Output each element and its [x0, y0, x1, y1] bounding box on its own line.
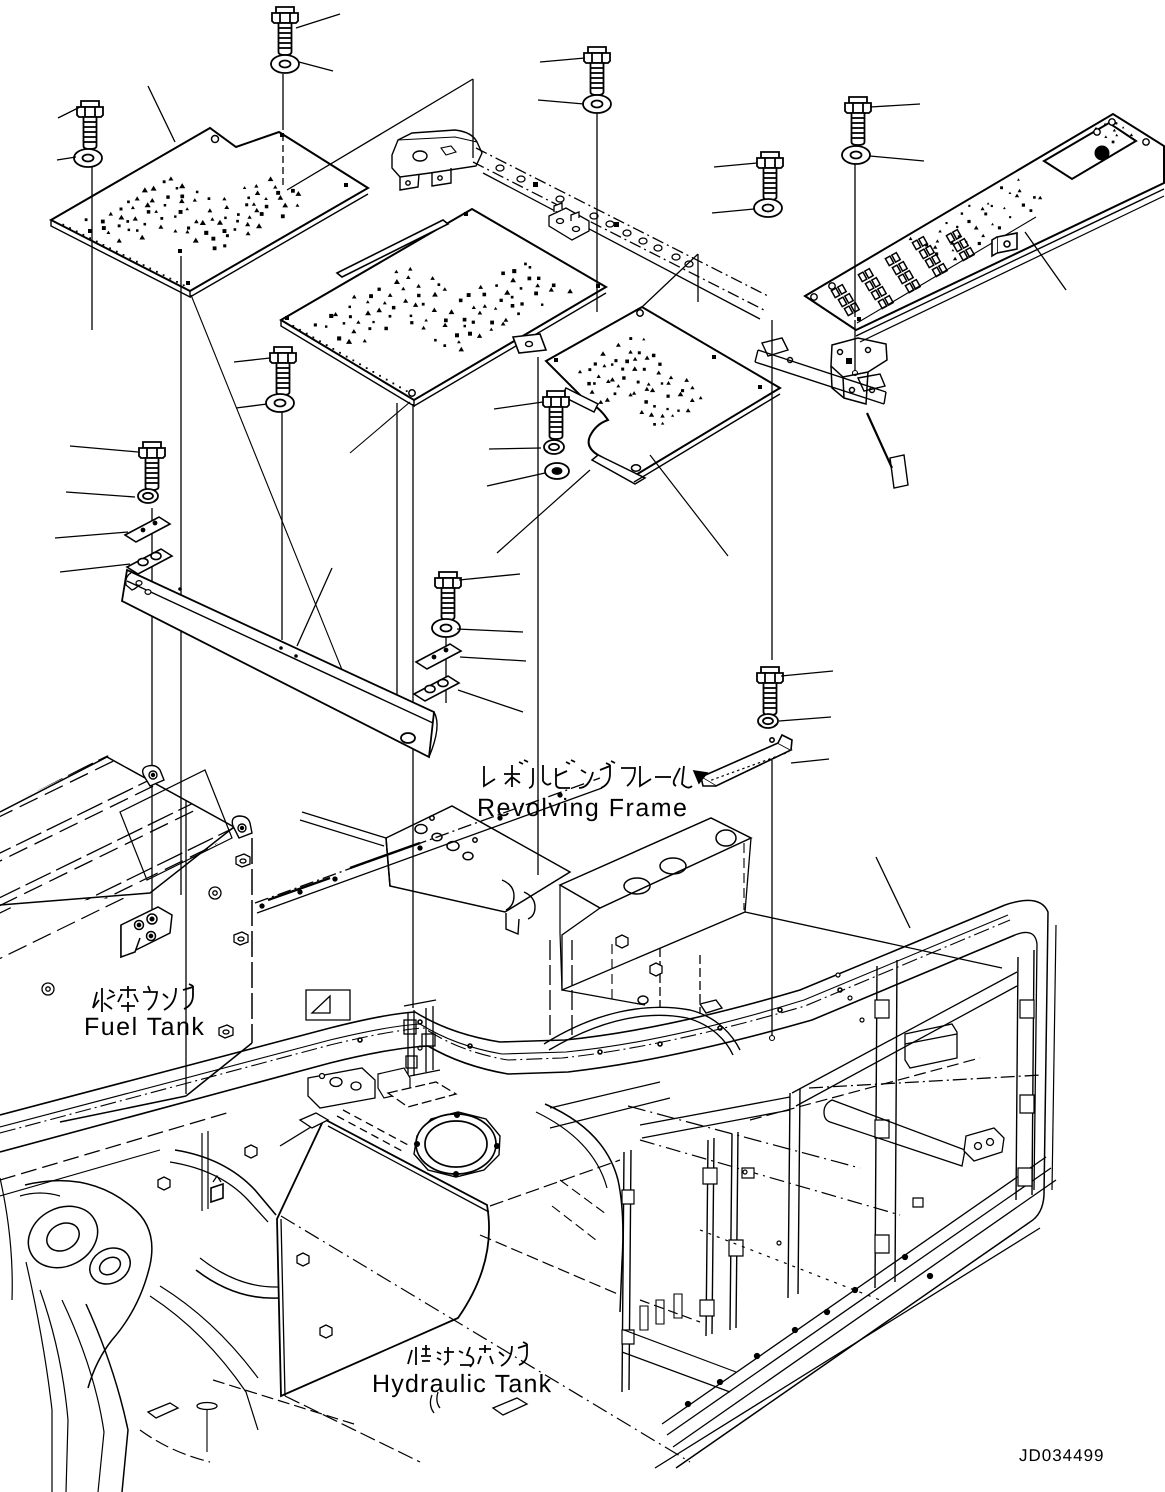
svg-text:Fuel Tank: Fuel Tank	[84, 1013, 205, 1041]
svg-text:Revolving Frame: Revolving Frame	[477, 794, 688, 822]
svg-text:Hydraulic Tank: Hydraulic Tank	[372, 1370, 552, 1398]
svg-text:JD034499: JD034499	[1019, 1446, 1105, 1465]
